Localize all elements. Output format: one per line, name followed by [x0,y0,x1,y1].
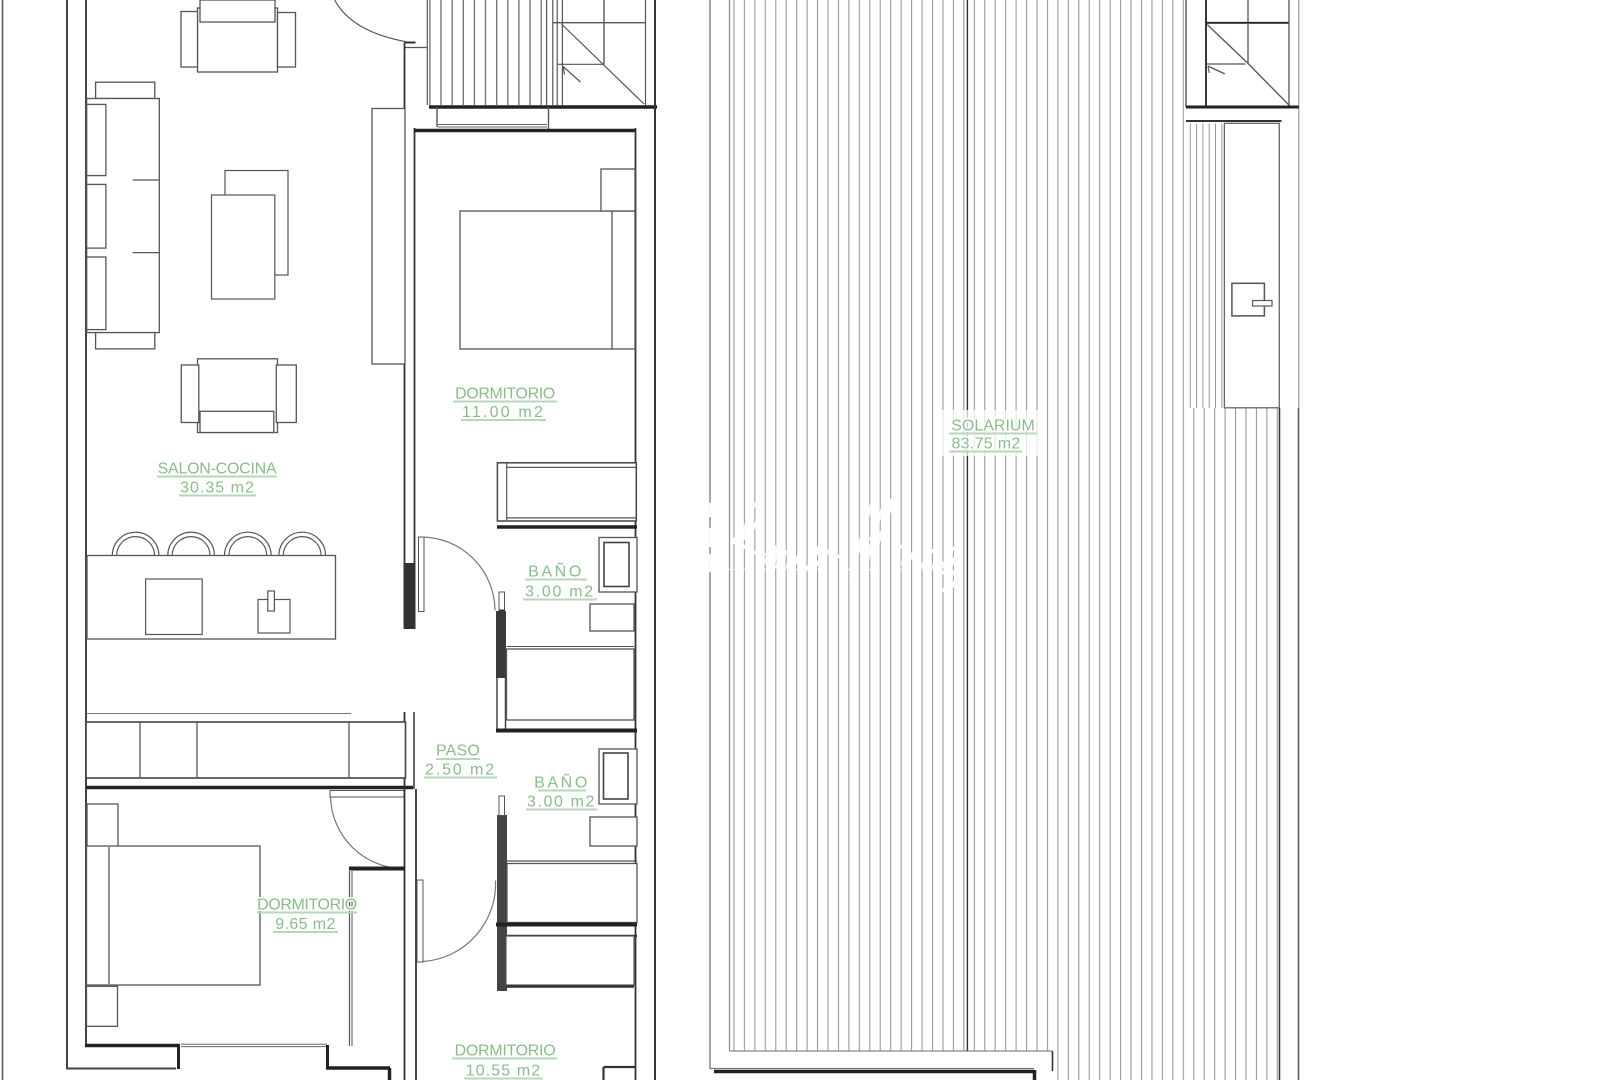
svg-text:10.55 m2: 10.55 m2 [466,1063,542,1080]
svg-text:30.35 m2: 30.35 m2 [180,480,255,497]
svg-text:2.50 m2: 2.50 m2 [425,762,496,779]
svg-text:PASO: PASO [436,743,480,760]
svg-text:SOLARIUM: SOLARIUM [951,418,1035,435]
svg-text:3.00 m2: 3.00 m2 [525,584,595,601]
svg-text:DORMITORIO: DORMITORIO [257,897,357,914]
svg-text:11.00 m2: 11.00 m2 [462,404,545,421]
svg-text:83.75 m2: 83.75 m2 [951,436,1020,453]
svg-text:DORMITORIO: DORMITORIO [455,386,555,403]
svg-text:BAÑO: BAÑO [534,772,590,792]
svg-text:3.00 m2: 3.00 m2 [527,794,596,811]
svg-text:BAÑO: BAÑO [528,561,584,581]
svg-text:SALON-COCINA: SALON-COCINA [158,461,277,478]
svg-text:9.65 m2: 9.65 m2 [275,916,336,933]
svg-text:DORMITORIO: DORMITORIO [455,1043,556,1060]
